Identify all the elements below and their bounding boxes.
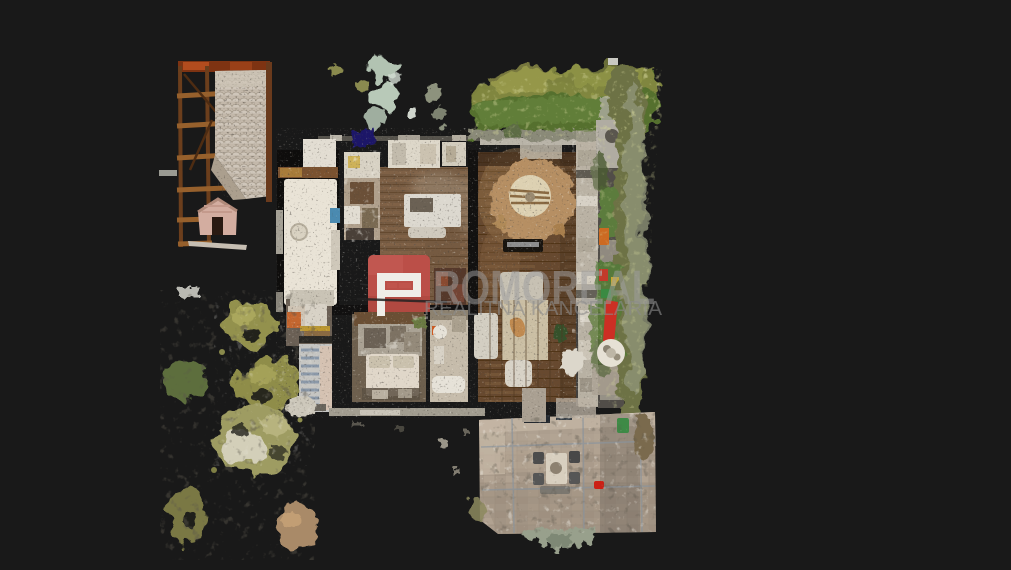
svg-text:REALITNÁ KANCELÁRIA: REALITNÁ KANCELÁRIA	[424, 297, 663, 320]
